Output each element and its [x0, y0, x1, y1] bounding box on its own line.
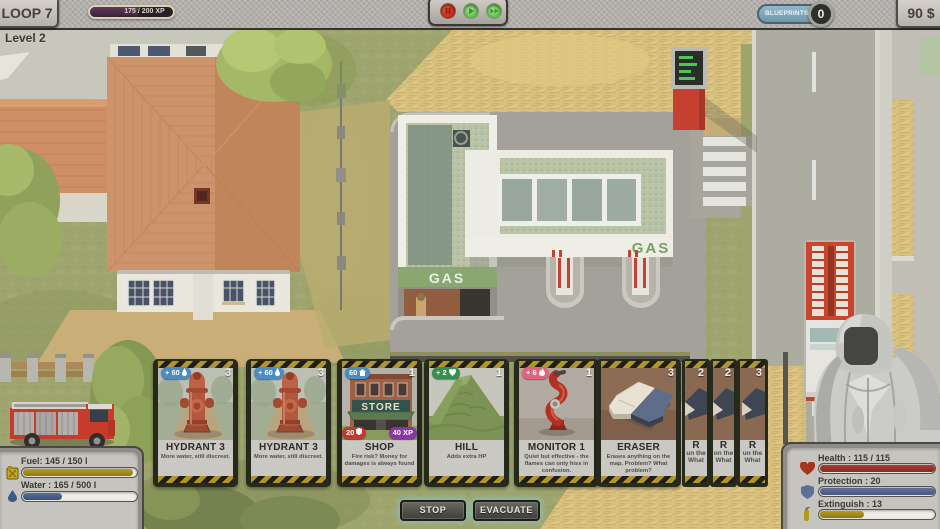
svg-text:STORE: STORE	[361, 402, 400, 413]
